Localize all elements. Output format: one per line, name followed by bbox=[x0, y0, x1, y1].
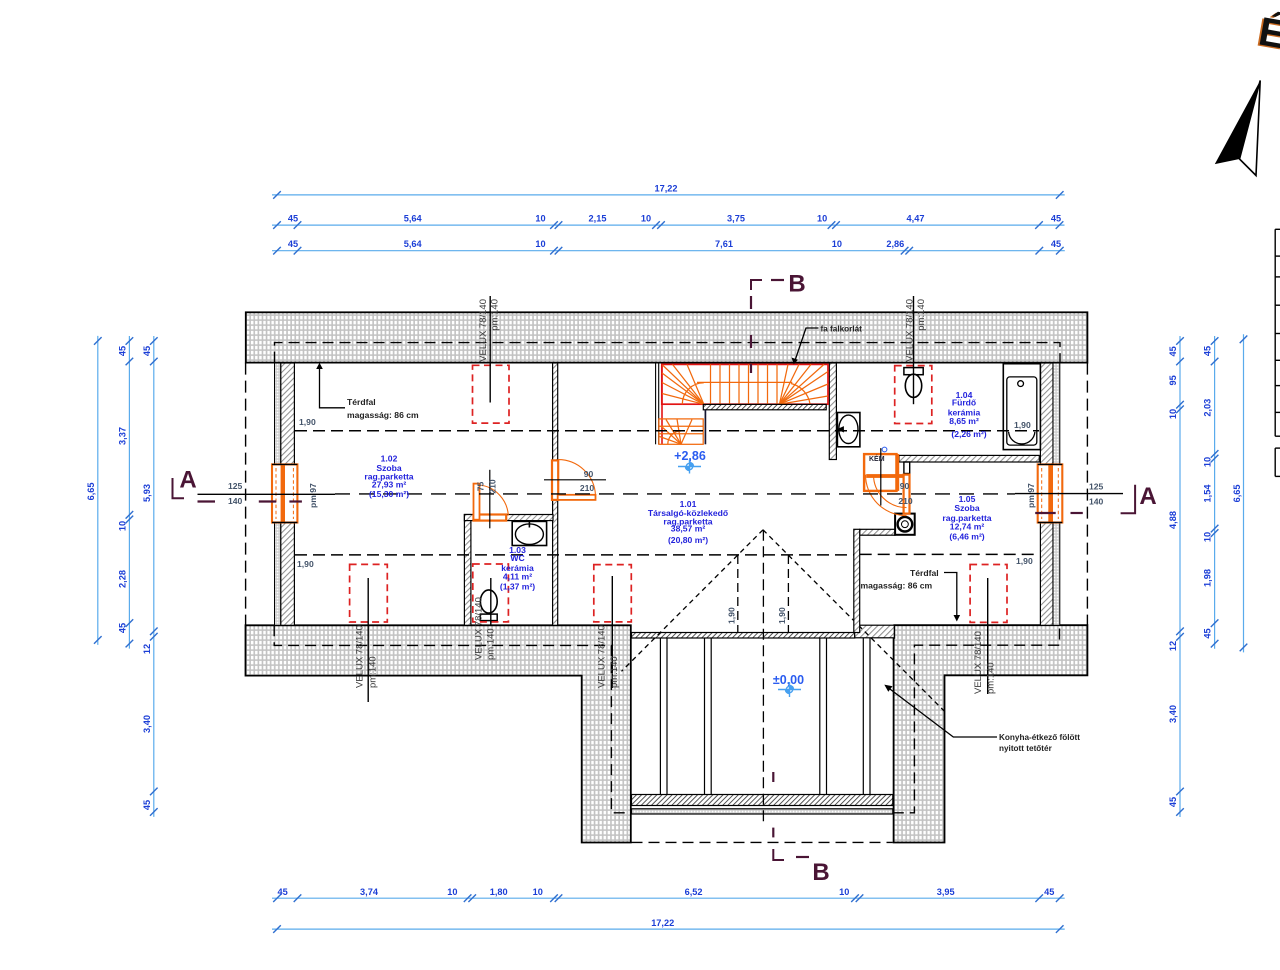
svg-text:1,80: 1,80 bbox=[490, 887, 508, 897]
svg-text:3,40: 3,40 bbox=[1168, 705, 1178, 723]
svg-text:Konyha-étkező fölött: Konyha-étkező fölött bbox=[999, 733, 1080, 742]
svg-text:WC: WC bbox=[510, 553, 524, 563]
svg-text:3,40: 3,40 bbox=[142, 715, 152, 733]
svg-text:(1,37 m²): (1,37 m²) bbox=[500, 582, 535, 592]
svg-text:10: 10 bbox=[535, 239, 545, 249]
svg-text:magasság: 86 cm: magasság: 86 cm bbox=[347, 410, 419, 420]
svg-text:VELUX 78/140: VELUX 78/140 bbox=[355, 625, 366, 688]
svg-text:140: 140 bbox=[228, 496, 243, 506]
svg-text:B: B bbox=[788, 271, 805, 298]
svg-text:6,65: 6,65 bbox=[1232, 484, 1242, 502]
svg-text:125: 125 bbox=[228, 481, 243, 491]
svg-text:(20,80 m²): (20,80 m²) bbox=[668, 535, 708, 545]
svg-text:210: 210 bbox=[580, 483, 595, 493]
svg-text:VELUX 78/140: VELUX 78/140 bbox=[474, 597, 485, 660]
svg-text:6,65: 6,65 bbox=[86, 482, 96, 500]
svg-text:(2,26 m²): (2,26 m²) bbox=[951, 429, 986, 439]
svg-text:45: 45 bbox=[1168, 797, 1178, 807]
svg-text:45: 45 bbox=[288, 239, 298, 249]
svg-text:10: 10 bbox=[1203, 532, 1213, 542]
svg-text:3,75: 3,75 bbox=[727, 214, 745, 224]
svg-text:3,95: 3,95 bbox=[937, 887, 955, 897]
svg-text:5,64: 5,64 bbox=[404, 239, 423, 249]
svg-text:125: 125 bbox=[1089, 482, 1104, 492]
svg-text:45: 45 bbox=[1203, 346, 1213, 356]
svg-text:45: 45 bbox=[142, 800, 152, 810]
svg-text:pm 97: pm 97 bbox=[308, 483, 318, 508]
svg-text:pm:140: pm:140 bbox=[916, 299, 927, 331]
svg-text:10: 10 bbox=[1168, 409, 1178, 419]
svg-text:pm:140: pm:140 bbox=[490, 299, 501, 331]
svg-text:12,74 m²: 12,74 m² bbox=[950, 522, 985, 532]
svg-text:210: 210 bbox=[488, 479, 498, 494]
svg-text:pm:140: pm:140 bbox=[609, 656, 620, 688]
svg-text:4,88: 4,88 bbox=[1168, 511, 1178, 529]
svg-text:10: 10 bbox=[533, 887, 543, 897]
svg-text:nyitott tetőtér: nyitott tetőtér bbox=[999, 744, 1053, 753]
svg-text:Térdfal: Térdfal bbox=[910, 568, 939, 578]
svg-text:45: 45 bbox=[1051, 239, 1061, 249]
svg-text:VELUX 78/140: VELUX 78/140 bbox=[597, 625, 608, 688]
svg-text:Fürdő: Fürdő bbox=[952, 398, 976, 408]
svg-text:45: 45 bbox=[277, 887, 287, 897]
svg-text:7,61: 7,61 bbox=[715, 239, 733, 249]
svg-text:1,90: 1,90 bbox=[1016, 556, 1033, 566]
svg-text:8,65 m²: 8,65 m² bbox=[949, 416, 979, 426]
svg-text:3,74: 3,74 bbox=[360, 887, 379, 897]
svg-text:90: 90 bbox=[584, 469, 594, 479]
svg-text:VELUX 78/140: VELUX 78/140 bbox=[478, 299, 489, 362]
svg-text:1,90: 1,90 bbox=[727, 607, 737, 624]
svg-text:10: 10 bbox=[447, 887, 457, 897]
svg-text:10: 10 bbox=[641, 214, 651, 224]
svg-text:10: 10 bbox=[839, 887, 849, 897]
svg-text:17,22: 17,22 bbox=[651, 918, 674, 928]
svg-text:(6,46 m²): (6,46 m²) bbox=[949, 532, 984, 542]
svg-text:VELUX 78/140: VELUX 78/140 bbox=[973, 631, 984, 694]
svg-text:Szoba: Szoba bbox=[954, 503, 980, 513]
svg-text:magasság: 86 cm: magasság: 86 cm bbox=[861, 581, 933, 591]
svg-text:pm:140: pm:140 bbox=[486, 628, 497, 660]
svg-text:2,28: 2,28 bbox=[118, 570, 128, 588]
svg-text:6,52: 6,52 bbox=[685, 887, 703, 897]
svg-text:±0,00: ±0,00 bbox=[773, 673, 804, 687]
svg-text:pm 97: pm 97 bbox=[1026, 483, 1036, 508]
svg-text:210: 210 bbox=[898, 496, 913, 506]
svg-text:2,86: 2,86 bbox=[886, 239, 904, 249]
svg-text:10: 10 bbox=[118, 521, 128, 531]
svg-text:1,98: 1,98 bbox=[1203, 569, 1213, 587]
svg-text:KÉM: KÉM bbox=[869, 454, 885, 463]
svg-text:pm:140: pm:140 bbox=[368, 656, 379, 688]
svg-text:45: 45 bbox=[118, 346, 128, 356]
svg-text:12: 12 bbox=[142, 644, 152, 654]
svg-text:1,90: 1,90 bbox=[299, 417, 316, 427]
svg-text:10: 10 bbox=[535, 214, 545, 224]
svg-text:2,03: 2,03 bbox=[1203, 399, 1213, 417]
svg-text:fa falkorlát: fa falkorlát bbox=[821, 325, 863, 334]
svg-text:3,37: 3,37 bbox=[118, 427, 128, 445]
svg-text:95: 95 bbox=[1168, 375, 1178, 385]
svg-text:(15,30 m²): (15,30 m²) bbox=[369, 489, 409, 499]
svg-text:5,64: 5,64 bbox=[404, 214, 423, 224]
svg-text:10: 10 bbox=[817, 214, 827, 224]
svg-text:1,90: 1,90 bbox=[777, 607, 787, 624]
svg-text:90: 90 bbox=[900, 481, 910, 491]
svg-text:75: 75 bbox=[476, 482, 486, 492]
svg-text:17,22: 17,22 bbox=[655, 184, 678, 194]
svg-text:5,93: 5,93 bbox=[142, 484, 152, 502]
svg-text:Térdfal: Térdfal bbox=[347, 397, 376, 407]
svg-text:140: 140 bbox=[1089, 497, 1104, 507]
svg-text:1,90: 1,90 bbox=[297, 559, 314, 569]
svg-text:VELUX 78/140: VELUX 78/140 bbox=[905, 299, 916, 362]
svg-text:4,47: 4,47 bbox=[907, 214, 925, 224]
svg-text:10: 10 bbox=[1203, 457, 1213, 467]
svg-text:45: 45 bbox=[142, 346, 152, 356]
svg-text:B: B bbox=[812, 859, 829, 886]
svg-text:45: 45 bbox=[118, 623, 128, 633]
svg-text:A: A bbox=[1139, 483, 1156, 510]
svg-text:38,57 m²: 38,57 m² bbox=[671, 523, 706, 533]
svg-text:4,11 m²: 4,11 m² bbox=[503, 571, 532, 581]
svg-text:1,90: 1,90 bbox=[1014, 420, 1031, 430]
svg-text:45: 45 bbox=[1044, 887, 1054, 897]
svg-text:45: 45 bbox=[1168, 346, 1178, 356]
svg-text:12: 12 bbox=[1168, 641, 1178, 651]
svg-text:2,15: 2,15 bbox=[589, 214, 607, 224]
svg-text:10: 10 bbox=[832, 239, 842, 249]
svg-text:45: 45 bbox=[1051, 214, 1061, 224]
svg-text:45: 45 bbox=[288, 214, 298, 224]
svg-text:A: A bbox=[179, 467, 196, 494]
svg-text:pm:140: pm:140 bbox=[986, 662, 997, 694]
svg-text:1,54: 1,54 bbox=[1203, 484, 1213, 503]
svg-text:45: 45 bbox=[1203, 628, 1213, 638]
